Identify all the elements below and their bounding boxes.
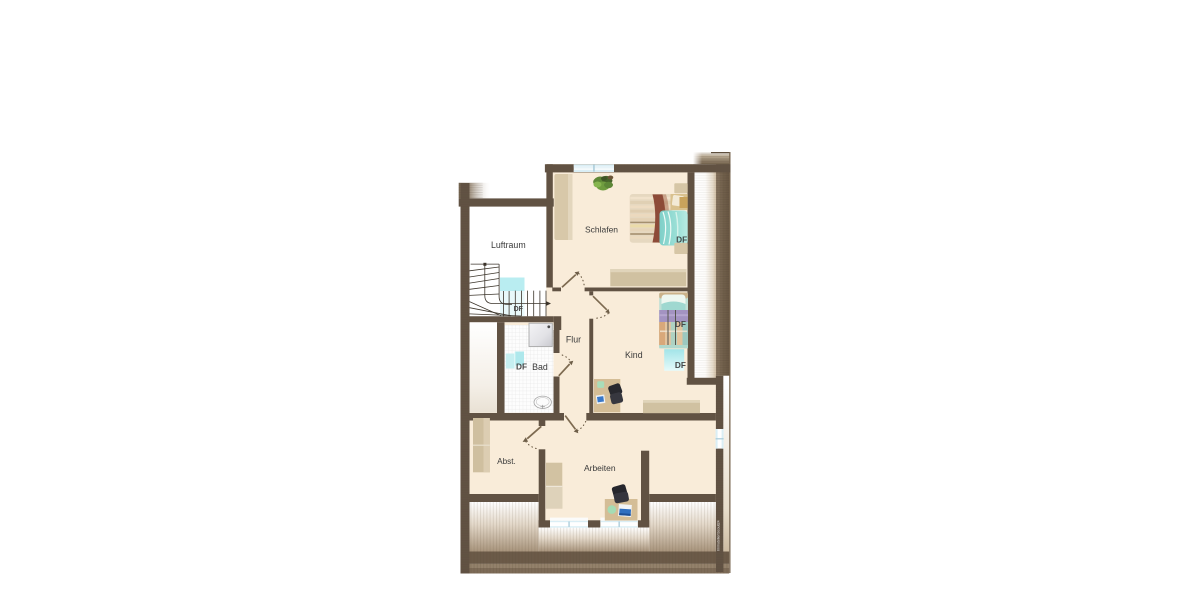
svg-text:Abst.: Abst. xyxy=(497,457,516,466)
svg-text:DF: DF xyxy=(514,306,524,313)
svg-text:Luftraum: Luftraum xyxy=(491,240,526,250)
svg-text:Flur: Flur xyxy=(566,335,581,345)
svg-text:DF: DF xyxy=(675,319,686,329)
svg-text:Bad: Bad xyxy=(532,362,548,372)
svg-text:Arbeiten: Arbeiten xyxy=(584,463,616,473)
svg-text:DF: DF xyxy=(516,362,527,372)
svg-text:Kind: Kind xyxy=(625,350,643,360)
svg-text:ImmobilienScout24: ImmobilienScout24 xyxy=(717,520,721,551)
svg-text:DF: DF xyxy=(676,234,687,244)
svg-text:Schlafen: Schlafen xyxy=(585,225,618,235)
svg-text:DF: DF xyxy=(675,360,686,370)
